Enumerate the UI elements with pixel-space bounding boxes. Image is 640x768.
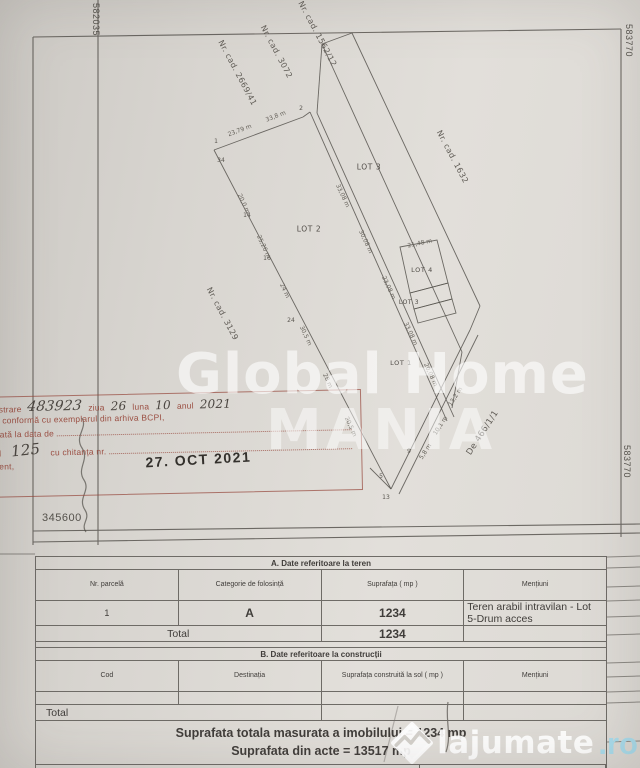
stamp-fee-value: 125 [10,441,41,459]
stamp-issued-text: Eliberată la data de [0,428,54,440]
col-mentiuni-b: Mențiuni [464,661,607,692]
plan-label: LOT 2 [297,225,322,233]
table-row: 1 A 1234 Teren arabil intravilan - Lot 5… [36,601,607,626]
plan-label: 14 [243,213,251,219]
cell-suprafata: 1234 [321,601,464,626]
stamp-month-value: 10 [155,399,171,411]
table-teren: A. Date referitoare la teren Nr. parcelă… [35,556,607,642]
plan-label: LOT 4 [411,267,433,274]
table-a-title: A. Date referitoare la teren [36,557,607,570]
plan-label: 5 [379,474,383,480]
grid-coordinate-bottom-left: 345600 [42,512,82,524]
lajumate-logo-icon [391,722,433,764]
col-nr-parcela: Nr. parcelă [36,570,179,601]
photo-layer: Nr. cad. 2669/41Nr. cad. 3072Nr. cad. 15… [0,0,640,768]
stamp-reg-label: Înregistrare [0,404,22,415]
stamp-day-value: 26 [111,400,127,412]
lajumate-tld: .ro [598,728,638,759]
col-suprafata-construita: Suprafața construită la sol ( mp ) [321,661,464,692]
table-empty-row [36,692,607,705]
lajumate-wordmark: lajumate [437,728,594,759]
stamp-reg-number: 483923 [27,399,83,414]
stamp-copy-text: Copie conformă cu exemplarul din arhiva … [0,412,165,426]
stamp-fee-label: Tariful [0,449,1,460]
table-constructii: B. Date referitoare la construcții Cod D… [35,647,607,721]
total-label-b: Total [36,705,322,721]
plan-label: 1 [214,139,218,145]
plan-label: 34 [217,158,225,164]
table-total-row: Total 1234 [36,626,607,642]
table-total-row-b: Total [36,705,607,721]
grid-coordinate-top-right: 583770 [624,24,634,57]
cell-categorie: A [178,601,321,626]
plan-label: LOT 1 [390,360,412,367]
plan-label: LOT 3 [357,163,382,171]
grid-coordinate-top-left: 582035 [91,3,101,36]
col-cod: Cod [36,661,179,692]
stamp-day-label: ziua [88,402,105,412]
grid-coordinate-bottom-right: 583770 [622,445,632,478]
plan-label: 13 [382,495,390,501]
total-value: 1234 [321,626,464,642]
plan-label: 24 [287,318,295,324]
stamp-referent-label: Referent, [0,461,14,472]
cell-nr-parcela: 1 [36,601,179,626]
stamp-year-value: 2021 [200,398,232,411]
col-suprafata: Suprafața ( mp ) [321,570,464,601]
plan-label: 16 [263,256,271,262]
total-label: Total [36,626,322,642]
lajumate-watermark: lajumate.ro [391,722,638,764]
cell-mentiuni: Teren arabil intravilan - Lot 5-Drum acc… [464,601,607,626]
stamp-year-label: anul [177,400,194,410]
registry-stamp: Înregistrare 483923 ziua 26 luna 10 anul… [0,389,363,498]
plan-label: LOT 3 [399,300,419,306]
col-mentiuni: Mențiuni [464,570,607,601]
plan-label: 9 [407,449,411,455]
scanned-cadastral-document: Nr. cad. 2669/41Nr. cad. 3072Nr. cad. 15… [0,0,640,768]
stamp-month-label: luna [132,401,149,411]
stamp-receipt-label: cu chitanța nr. [50,446,106,457]
col-categorie: Categorie de folosință [178,570,321,601]
col-destinatia: Destinația [178,661,321,692]
table-b-title: B. Date referitoare la construcții [36,648,607,661]
plan-label: 2 [299,106,303,112]
